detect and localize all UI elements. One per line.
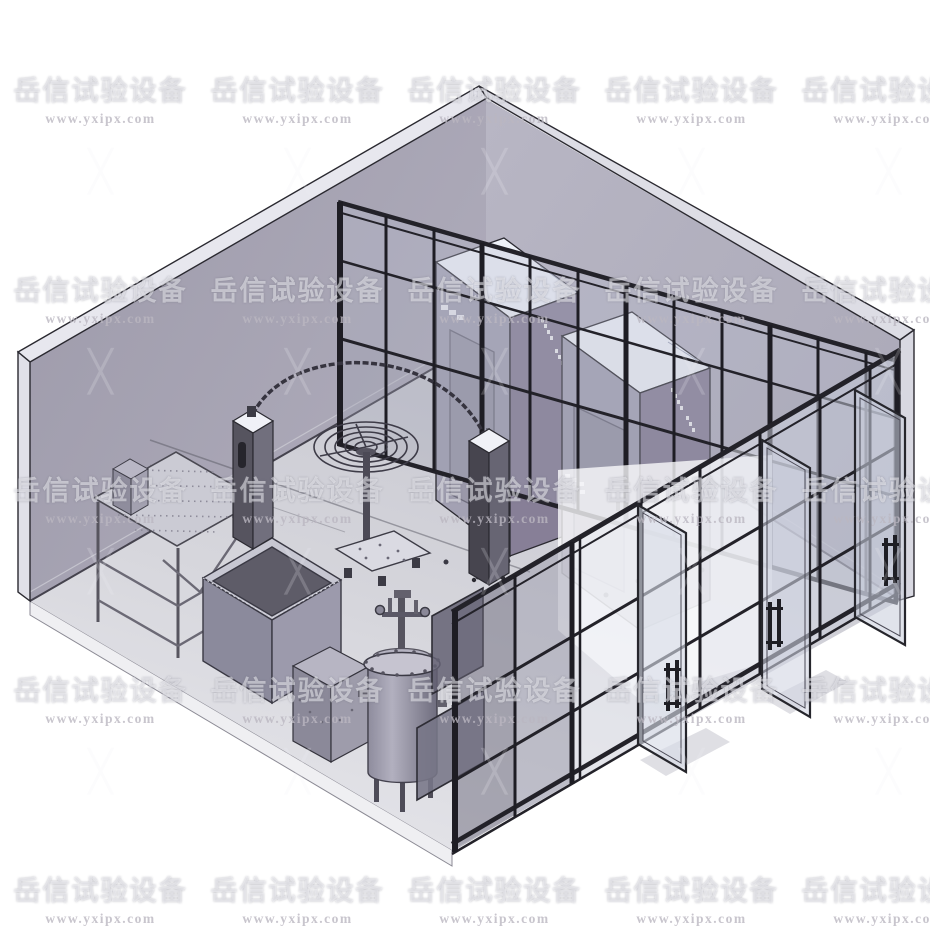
open-glass-door-3: [855, 390, 905, 645]
bench-specimen-box: [113, 459, 148, 515]
open-glass-door-1: [638, 505, 686, 772]
lab-room-isometric-scene: [0, 0, 930, 930]
cad-render-canvas: 岳信试验设备www.yxipx.com╳岳信试验设备www.yxipx.com╳…: [0, 0, 930, 930]
open-glass-door-2: [762, 440, 810, 717]
spray-arc-tower-right: [469, 429, 509, 585]
control-cabinet: [293, 647, 368, 762]
spray-arc-tower-left: [233, 409, 273, 549]
